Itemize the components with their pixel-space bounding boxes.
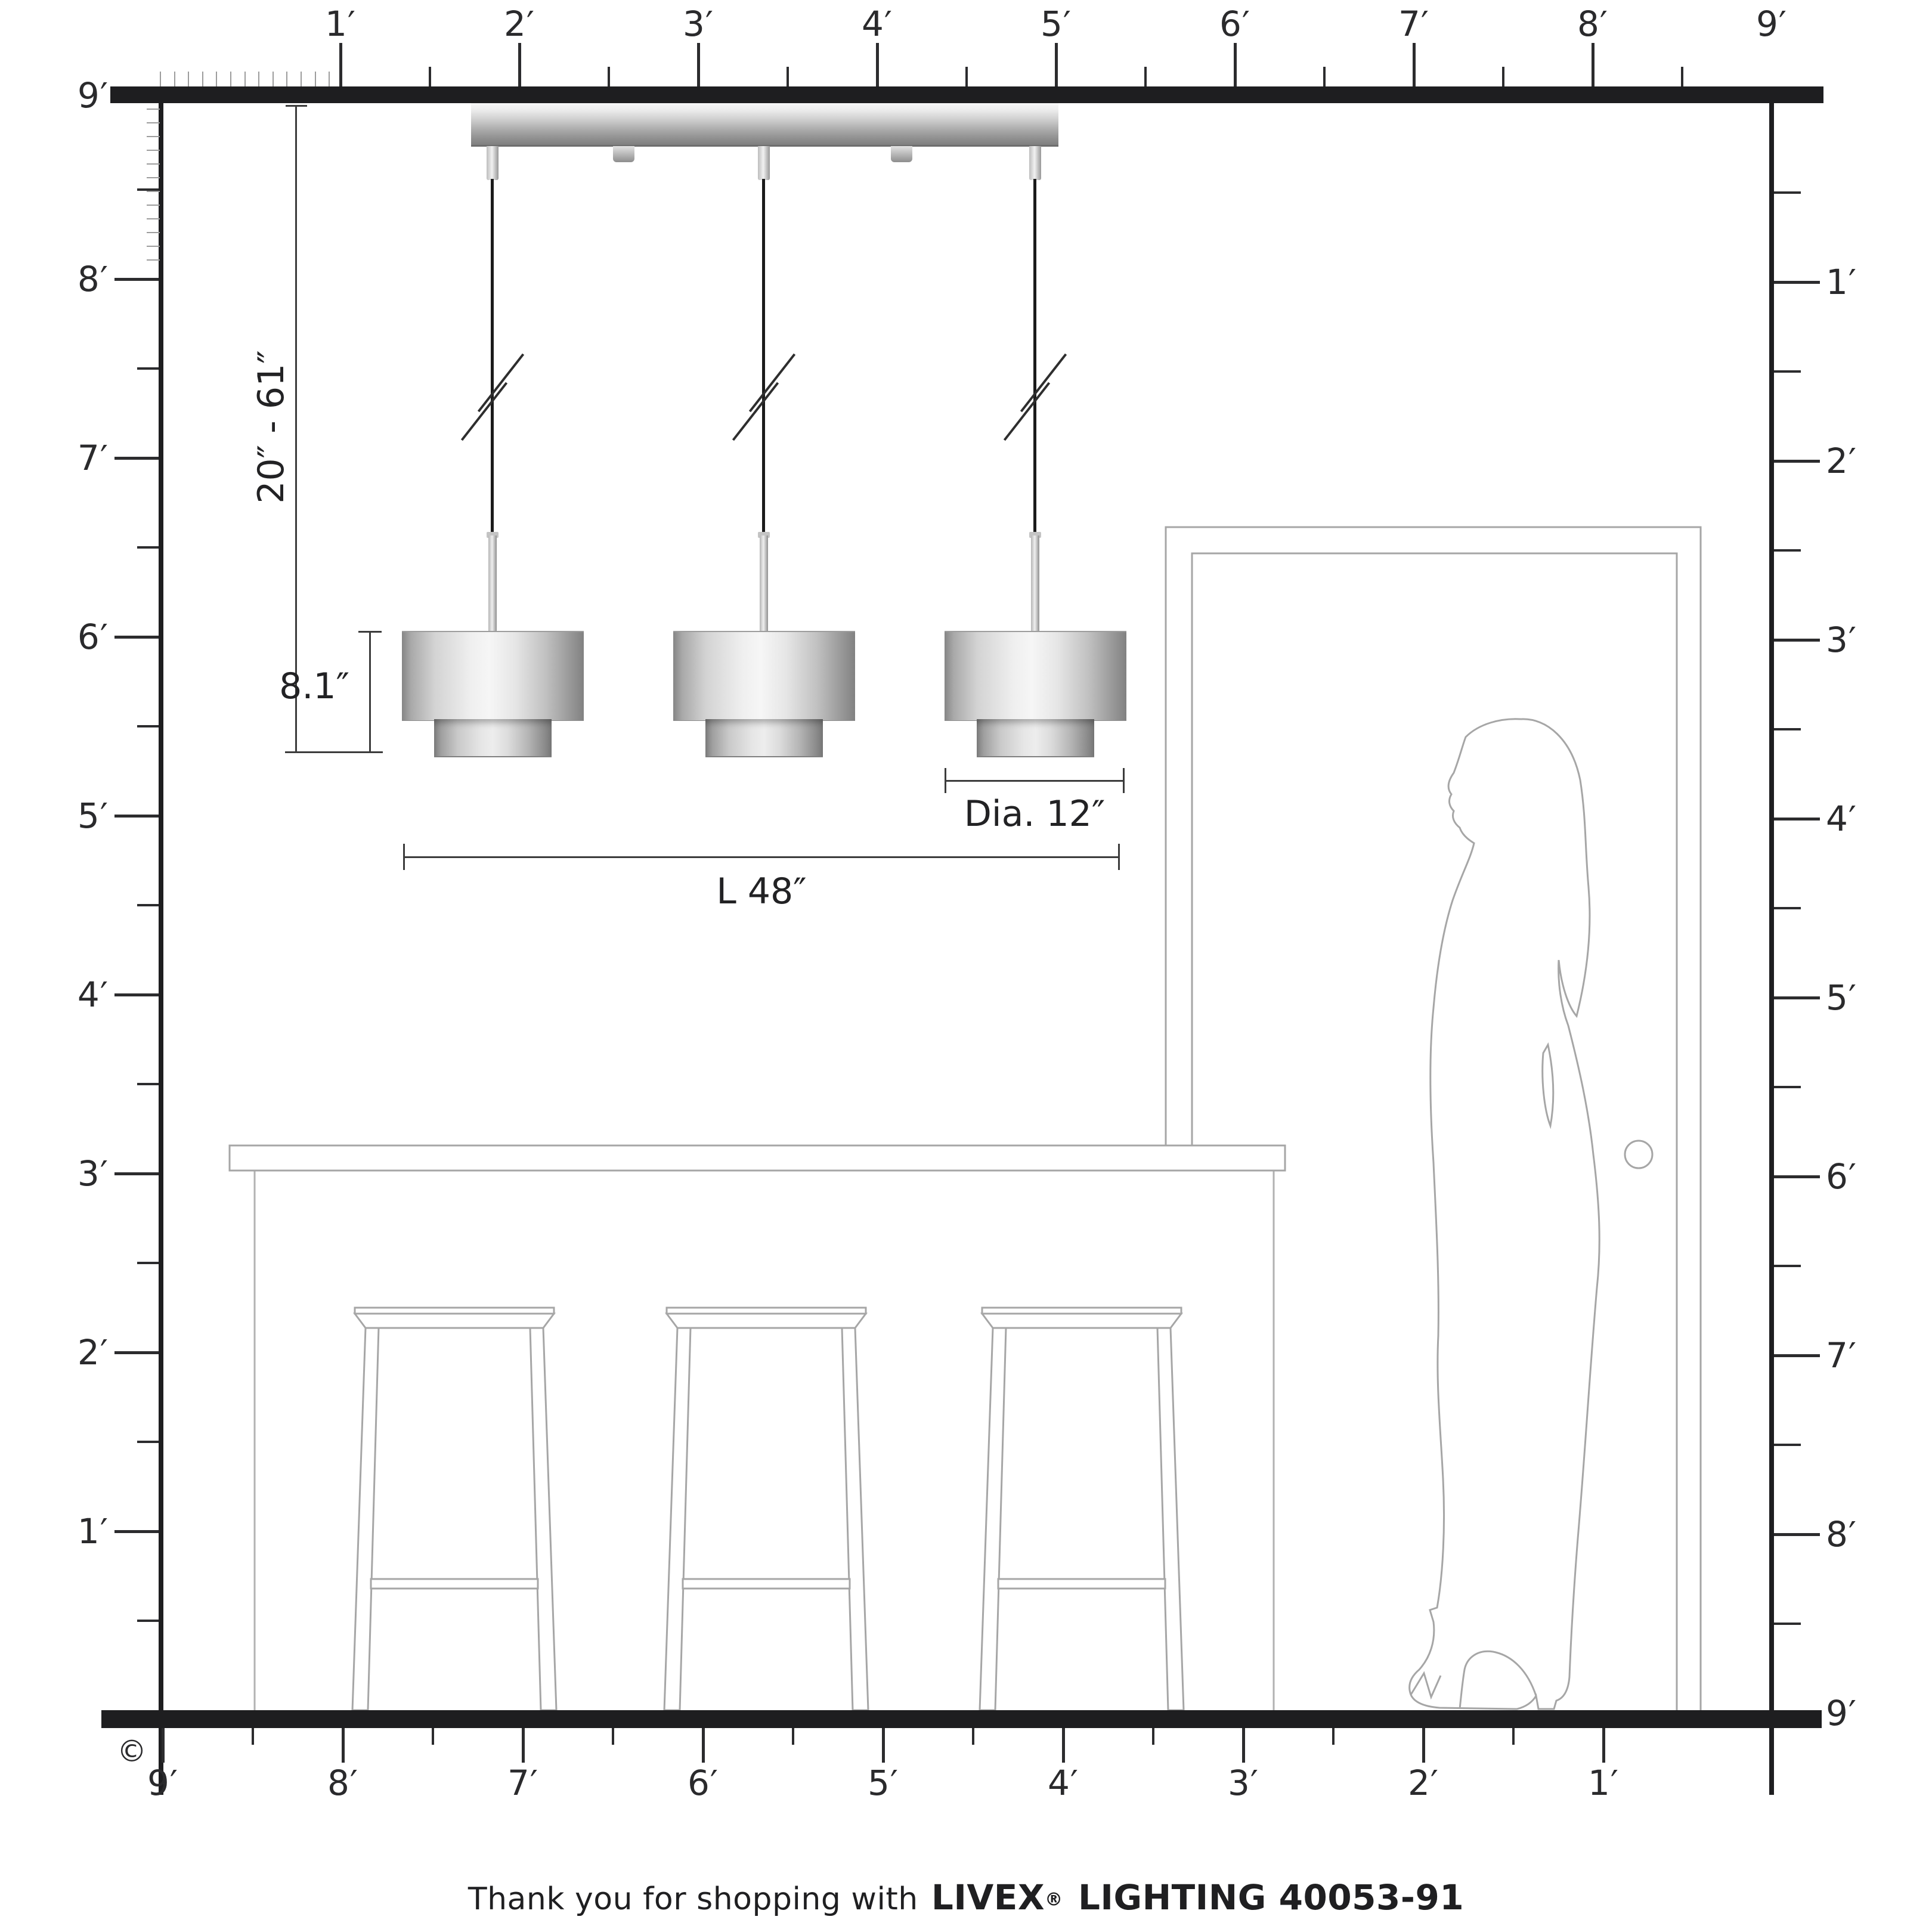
bottom-major-tick	[1602, 1728, 1605, 1763]
top-fine-hatch	[315, 72, 316, 86]
ruler-label-left-2ft: 2′	[25, 1333, 109, 1371]
top-fine-hatch	[188, 72, 189, 86]
dim-line-length	[403, 856, 1120, 858]
top-fine-hatch	[244, 72, 246, 86]
dim-cap	[1118, 844, 1120, 870]
left-minor-tick	[137, 1441, 159, 1443]
pendant-cable-3	[1033, 179, 1036, 537]
top-fine-hatch	[286, 72, 287, 86]
top-minor-tick	[787, 67, 789, 86]
bottom-major-tick	[1062, 1728, 1065, 1763]
dim-cap	[945, 768, 946, 793]
left-fine-hatch	[147, 191, 160, 192]
top-minor-tick	[1144, 67, 1147, 86]
ruler-label-bottom-6ft: 6′	[661, 1764, 745, 1802]
ruler-label-right-3ft: 3′	[1826, 621, 1909, 659]
right-minor-tick	[1774, 1265, 1801, 1267]
left-fine-hatch	[147, 150, 160, 151]
top-fine-hatch	[230, 72, 231, 86]
top-major-tick	[1592, 43, 1594, 86]
top-fine-hatch	[301, 72, 302, 86]
bottom-minor-tick	[972, 1728, 974, 1745]
stool-footrest	[998, 1579, 1165, 1589]
left-major-tick	[114, 636, 159, 639]
left-fine-hatch	[147, 177, 160, 178]
bottom-major-tick	[882, 1728, 885, 1763]
top-fine-hatch	[160, 72, 161, 86]
left-minor-tick	[137, 1620, 159, 1622]
right-major-tick	[1774, 460, 1820, 463]
pendant-stem-3	[1031, 535, 1039, 632]
dim-cap	[1123, 768, 1125, 793]
left-major-tick	[114, 815, 159, 818]
stem-connector	[1029, 146, 1041, 180]
right-minor-tick	[1774, 728, 1801, 730]
bottom-major-tick	[702, 1728, 705, 1763]
top-major-tick	[697, 43, 700, 86]
left-fine-hatch	[147, 109, 160, 110]
top-major-tick	[339, 43, 342, 86]
left-minor-tick	[137, 546, 159, 549]
bottom-major-tick	[1242, 1728, 1245, 1763]
stool-apron	[667, 1314, 866, 1328]
top-major-tick	[1055, 43, 1058, 86]
left-fine-hatch	[147, 259, 160, 261]
right-minor-tick	[1774, 907, 1801, 909]
right-major-tick	[1774, 818, 1820, 821]
dim-cap	[403, 844, 405, 870]
right-major-tick	[1774, 1533, 1820, 1536]
dim-line-hanging-range	[295, 105, 297, 753]
left-fine-hatch	[147, 246, 160, 247]
dim-cap	[358, 631, 382, 633]
left-major-tick	[114, 1351, 159, 1354]
left-fine-hatch	[147, 218, 160, 219]
ruler-label-top-4ft: 4′	[835, 5, 919, 43]
footer-caption: Thank you for shopping with LIVEX® LIGHT…	[0, 1877, 1932, 1918]
ruler-label-top-1ft: 1′	[299, 5, 382, 43]
right-major-tick	[1774, 639, 1820, 642]
dim-label-shade-height: 8.1″	[230, 665, 349, 707]
pendant-shade-1-lower	[434, 719, 552, 757]
ruler-label-left-9ft: 9′	[25, 76, 109, 114]
pendant-shade-1	[402, 631, 584, 721]
ruler-label-left-7ft: 7′	[25, 439, 109, 477]
pendant-shade-2-lower	[705, 719, 823, 757]
bottom-major-tick	[1422, 1728, 1425, 1763]
ruler-label-right-1ft: 1′	[1826, 263, 1909, 301]
right-major-tick	[1774, 281, 1820, 284]
ruler-label-left-3ft: 3′	[25, 1154, 109, 1193]
ruler-label-bottom-5ft: 5′	[841, 1764, 925, 1802]
ruler-label-top-7ft: 7′	[1372, 5, 1456, 43]
ruler-label-left-4ft: 4′	[25, 976, 109, 1014]
ruler-label-bottom-3ft: 3′	[1202, 1764, 1285, 1802]
canopy-screw	[891, 146, 912, 162]
stool-seat	[667, 1308, 866, 1314]
ruler-label-right-2ft: 2′	[1826, 442, 1909, 480]
bottom-major-tick	[342, 1728, 345, 1763]
pendant-shade-3-lower	[977, 719, 1094, 757]
ruler-label-top-9ft: 9′	[1730, 5, 1813, 43]
counter-top	[230, 1145, 1285, 1171]
stool-footrest	[683, 1579, 850, 1589]
top-fine-hatch	[216, 72, 217, 86]
ruler-label-bottom-1ft: 1′	[1562, 1764, 1645, 1802]
pendant-cable-1	[491, 179, 494, 537]
stool-seat	[355, 1308, 554, 1314]
ruler-label-left-8ft: 8′	[25, 260, 109, 298]
copyright-icon: ©	[117, 1734, 147, 1769]
canopy-screw	[613, 146, 634, 162]
left-major-tick	[114, 278, 159, 281]
floor-bar	[101, 1710, 1822, 1728]
top-fine-hatch	[174, 72, 175, 86]
dim-line-diameter	[945, 780, 1125, 782]
left-fine-hatch	[147, 163, 160, 165]
ruler-label-right-7ft: 7′	[1826, 1336, 1909, 1374]
top-major-tick	[1234, 43, 1237, 86]
top-minor-tick	[965, 67, 968, 86]
dim-cap	[286, 105, 307, 107]
left-fine-hatch	[147, 122, 160, 123]
top-fine-hatch	[258, 72, 259, 86]
dim-cap	[285, 751, 383, 753]
ruler-label-right-6ft: 6′	[1826, 1157, 1909, 1196]
ruler-label-top-6ft: 6′	[1193, 5, 1277, 43]
left-major-tick	[114, 457, 159, 460]
top-minor-tick	[429, 67, 431, 86]
ruler-label-top-3ft: 3′	[657, 5, 740, 43]
pendant-cable-2	[762, 179, 765, 537]
ruler-label-bottom-7ft: 7′	[481, 1764, 565, 1802]
left-fine-hatch	[147, 232, 160, 233]
stool-apron	[982, 1314, 1181, 1328]
ruler-label-left-5ft: 5′	[25, 797, 109, 835]
ruler-label-bottom-2ft: 2′	[1382, 1764, 1465, 1802]
dim-line-shade-height	[369, 631, 371, 753]
bottom-minor-tick	[1512, 1728, 1515, 1745]
ruler-label-bottom-4ft: 4′	[1021, 1764, 1105, 1802]
bottom-major-tick	[162, 1728, 165, 1763]
top-major-tick	[518, 43, 521, 86]
dim-label-length: L 48″	[642, 871, 881, 912]
bottom-minor-tick	[432, 1728, 434, 1745]
footer-brand: LIVEX	[931, 1877, 1045, 1918]
right-minor-tick	[1774, 370, 1801, 373]
counter-body	[255, 1171, 1274, 1711]
top-minor-tick	[1502, 67, 1504, 86]
stool-apron	[355, 1314, 554, 1328]
pendant-shade-2	[673, 631, 855, 721]
top-minor-tick	[608, 67, 610, 86]
top-fine-hatch	[202, 72, 203, 86]
dim-label-diameter: Dia. 12″	[915, 793, 1154, 835]
pendant-stem-2	[760, 535, 768, 632]
bottom-major-tick	[522, 1728, 525, 1763]
top-minor-tick	[1681, 67, 1683, 86]
ruler-label-top-5ft: 5′	[1014, 5, 1098, 43]
right-minor-tick	[1774, 1623, 1801, 1625]
ruler-label-left-1ft: 1′	[25, 1512, 109, 1550]
left-major-tick	[114, 993, 159, 996]
left-ruler-line	[159, 86, 163, 1795]
left-minor-tick	[137, 725, 159, 727]
left-minor-tick	[137, 1262, 159, 1264]
top-major-tick	[876, 43, 879, 86]
stool-seat	[982, 1308, 1181, 1314]
left-fine-hatch	[147, 205, 160, 206]
registered-mark-icon: ®	[1045, 1890, 1063, 1911]
right-minor-tick	[1774, 1086, 1801, 1088]
ceiling-bar	[110, 86, 1823, 103]
ruler-label-left-6ft: 6′	[25, 618, 109, 656]
left-minor-tick	[137, 1083, 159, 1085]
stool-footrest	[371, 1579, 538, 1589]
dim-label-hanging-range: 20″ - 61″	[250, 350, 292, 503]
ruler-label-right-5ft: 5′	[1826, 979, 1909, 1017]
ruler-label-bottom-9ft: 9′	[121, 1764, 205, 1802]
top-fine-hatch	[273, 72, 274, 86]
bottom-minor-tick	[792, 1728, 794, 1745]
left-major-tick	[114, 1172, 159, 1175]
left-major-tick	[114, 1530, 159, 1533]
stem-connector	[758, 146, 770, 180]
ruler-label-right-4ft: 4′	[1826, 800, 1909, 838]
right-major-tick	[1774, 1354, 1820, 1357]
bottom-minor-tick	[1332, 1728, 1335, 1745]
bottom-minor-tick	[252, 1728, 254, 1745]
left-minor-tick	[137, 904, 159, 906]
top-minor-tick	[1323, 67, 1326, 86]
ruler-label-bottom-8ft: 8′	[301, 1764, 385, 1802]
right-major-tick	[1774, 1175, 1820, 1178]
ceiling-canopy	[471, 103, 1058, 147]
ruler-label-top-2ft: 2′	[478, 5, 561, 43]
bottom-minor-tick	[1152, 1728, 1154, 1745]
pendant-stem-1	[488, 535, 497, 632]
bottom-minor-tick	[612, 1728, 614, 1745]
footer-product-number: LIGHTING 40053-91	[1078, 1877, 1464, 1918]
right-minor-tick	[1774, 191, 1801, 194]
left-minor-tick	[137, 367, 159, 370]
right-major-tick	[1774, 996, 1820, 999]
top-fine-hatch	[329, 72, 330, 86]
pendant-shade-3	[945, 631, 1126, 721]
stem-connector	[487, 146, 499, 180]
right-minor-tick	[1774, 1444, 1801, 1446]
ruler-label-right-8ft: 8′	[1826, 1515, 1909, 1553]
ruler-label-right-9ft: 9′	[1826, 1694, 1909, 1732]
ruler-label-top-8ft: 8′	[1551, 5, 1634, 43]
left-fine-hatch	[147, 136, 160, 137]
room-lineart	[0, 0, 1932, 1932]
right-minor-tick	[1774, 549, 1801, 552]
right-ruler-line	[1769, 86, 1774, 1795]
top-major-tick	[1413, 43, 1416, 86]
footer-thanks-text: Thank you for shopping with	[468, 1881, 918, 1917]
scale-diagram: 1′ 2′ 3′ 4′ 5′ 6′ 7′ 8′ 9′ 9′ 8′ 7′ 6′ 5…	[0, 0, 1932, 1932]
